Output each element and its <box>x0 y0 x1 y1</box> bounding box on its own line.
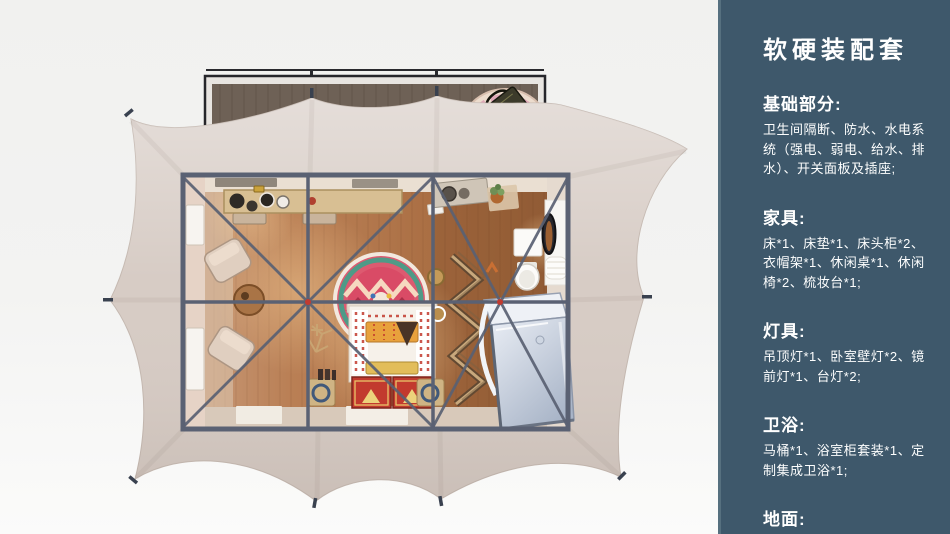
section-body: 床*1、床垫*1、床头柜*2、衣帽架*1、休闲桌*1、休闲椅*2、梳妆台*1; <box>763 234 930 293</box>
wash-counter <box>431 178 489 208</box>
section-heading: 家具: <box>763 204 930 229</box>
spec-section-furniture: 家具: 床*1、床垫*1、床头柜*2、衣帽架*1、休闲桌*1、休闲椅*2、梳妆台… <box>763 204 930 293</box>
drum-stool <box>428 269 444 285</box>
side-table <box>234 285 264 315</box>
section-heading: 基础部分: <box>763 90 930 115</box>
section-heading: 地面: <box>763 505 930 530</box>
spec-section-floor: 地面: 强化木地板、卫生间防滑防潮石塑板; <box>763 505 930 534</box>
render-area <box>0 0 718 534</box>
wall-vent <box>352 179 398 188</box>
vanity-stool <box>545 257 567 279</box>
blanket-chest <box>352 377 391 408</box>
dining-chair <box>233 213 266 224</box>
slide-root: 软硬装配套 基础部分: 卫生间隔断、防水、水电系统（强电、弱电、给水、排水）、开… <box>0 0 950 534</box>
section-heading: 灯具: <box>763 317 930 342</box>
spec-sidebar: 软硬装配套 基础部分: 卫生间隔断、防水、水电系统（强电、弱电、给水、排水）、开… <box>718 0 950 534</box>
section-body: 吊顶灯*1、卧室壁灯*2、镜前灯*1、台灯*2; <box>763 347 930 386</box>
section-heading: 卫浴: <box>763 411 930 436</box>
door-mat <box>346 406 408 425</box>
spec-section-lighting: 灯具: 吊顶灯*1、卧室壁灯*2、镜前灯*1、台灯*2; <box>763 317 930 386</box>
floorplan-illustration <box>0 0 718 534</box>
frame-joint <box>305 299 311 305</box>
door-mat <box>236 406 282 424</box>
window <box>186 328 204 390</box>
bedside-stool <box>308 379 335 406</box>
sidebar-title: 软硬装配套 <box>721 30 950 65</box>
wall-vent <box>215 178 277 187</box>
spec-sections: 基础部分: 卫生间隔断、防水、水电系统（强电、弱电、给水、排水）、开关面板及插座… <box>721 90 950 534</box>
spec-section-bathroom: 卫浴: 马桶*1、浴室柜套装*1、定制集成卫浴*1; <box>763 411 930 480</box>
bedside-stool <box>417 379 444 406</box>
section-body: 卫生间隔断、防水、水电系统（强电、弱电、给水、排水）、开关面板及插座; <box>763 120 930 179</box>
spec-section-basics: 基础部分: 卫生间隔断、防水、水电系统（强电、弱电、给水、排水）、开关面板及插座… <box>763 90 930 179</box>
window <box>186 205 204 245</box>
section-body: 马桶*1、浴室柜套装*1、定制集成卫浴*1; <box>763 441 930 480</box>
frame-joint <box>497 299 503 305</box>
